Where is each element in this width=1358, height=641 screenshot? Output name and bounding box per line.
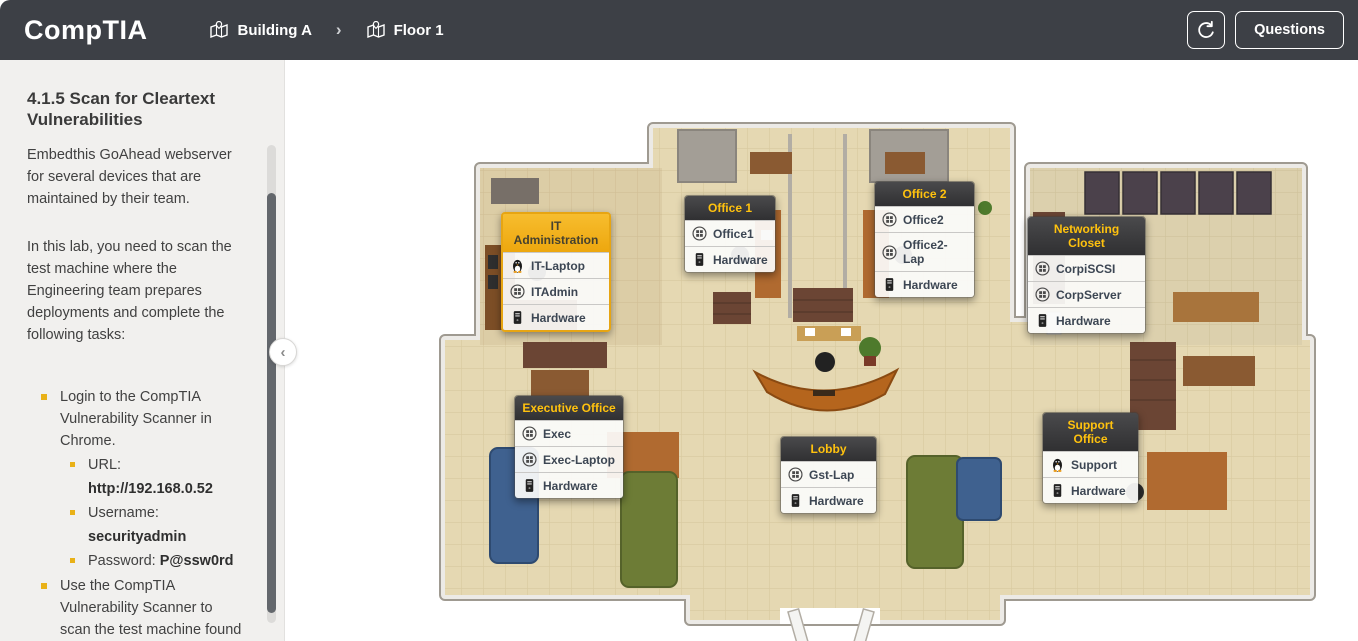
comptia-logo: CompTIA bbox=[24, 15, 147, 46]
device-label: Exec-Laptop bbox=[543, 453, 615, 467]
device-label: Hardware bbox=[1056, 314, 1111, 328]
username-label: Username: bbox=[88, 505, 159, 521]
hardware-icon bbox=[1035, 313, 1050, 328]
sidebar-scrollbar-thumb[interactable] bbox=[267, 193, 276, 613]
subtask-username: Username: securityadmin bbox=[70, 501, 244, 549]
refresh-icon bbox=[1196, 20, 1216, 40]
room-title[interactable]: Office 1 bbox=[685, 196, 775, 220]
subtask-url: URL: http://192.168.0.52 bbox=[70, 453, 244, 501]
lab-title: 4.1.5 Scan for Cleartext Vulnerabilities bbox=[27, 88, 244, 131]
task-list: Login to the CompTIA Vulnerability Scann… bbox=[41, 386, 244, 641]
password-value: P@ssw0rd bbox=[160, 553, 234, 569]
hardware-icon bbox=[522, 478, 537, 493]
room-title[interactable]: IT Administration bbox=[503, 214, 609, 252]
device-label: CorpServer bbox=[1056, 288, 1121, 302]
room-label-office-1[interactable]: Office 1 Office1 Hardware bbox=[684, 195, 776, 273]
windows-icon bbox=[882, 245, 897, 260]
floorplan-area: IT Administration IT-Laptop ITAdmin Hard… bbox=[285, 60, 1358, 641]
device-label: Hardware bbox=[543, 479, 598, 493]
linux-icon bbox=[510, 258, 525, 273]
url-label: URL: bbox=[88, 457, 121, 473]
breadcrumb-floor[interactable]: Floor 1 bbox=[366, 21, 444, 39]
room-label-it-administration[interactable]: IT Administration IT-Laptop ITAdmin Hard… bbox=[501, 212, 611, 332]
device-item-hardware[interactable]: Hardware bbox=[685, 246, 775, 272]
device-label: Office1 bbox=[713, 227, 754, 241]
device-label: Gst-Lap bbox=[809, 468, 854, 482]
room-title[interactable]: Lobby bbox=[781, 437, 876, 461]
windows-icon bbox=[1035, 261, 1050, 276]
device-item-exec[interactable]: Exec bbox=[515, 420, 623, 446]
device-label: ITAdmin bbox=[531, 285, 578, 299]
room-title[interactable]: Networking Closet bbox=[1028, 217, 1145, 255]
windows-icon bbox=[1035, 287, 1050, 302]
device-item-hardware[interactable]: Hardware bbox=[1043, 477, 1138, 503]
url-value: http://192.168.0.52 bbox=[88, 481, 213, 497]
lab-instructions: In this lab, you need to scan the test m… bbox=[27, 236, 244, 346]
device-label: Hardware bbox=[809, 494, 864, 508]
top-header-bar: CompTIA Building A › Floor 1 bbox=[0, 0, 1358, 60]
device-label: IT-Laptop bbox=[531, 259, 585, 273]
device-label: Hardware bbox=[713, 253, 768, 267]
windows-icon bbox=[522, 426, 537, 441]
task-item-scan: Use the CompTIA Vulnerability Scanner to… bbox=[41, 575, 244, 641]
task-text: Use the CompTIA Vulnerability Scanner to… bbox=[60, 578, 241, 641]
room-title[interactable]: Executive Office bbox=[515, 396, 623, 420]
device-item-hardware[interactable]: Hardware bbox=[875, 271, 974, 297]
map-pin-icon bbox=[209, 21, 229, 39]
hardware-icon bbox=[882, 277, 897, 292]
windows-icon bbox=[788, 467, 803, 482]
lab-instructions-sidebar: 4.1.5 Scan for Cleartext Vulnerabilities… bbox=[0, 60, 285, 641]
device-item-corpserver[interactable]: CorpServer bbox=[1028, 281, 1145, 307]
windows-icon bbox=[510, 284, 525, 299]
room-title[interactable]: Support Office bbox=[1043, 413, 1138, 451]
device-item-gst-lap[interactable]: Gst-Lap bbox=[781, 461, 876, 487]
device-label: Office2 bbox=[903, 213, 944, 227]
hardware-icon bbox=[1050, 483, 1065, 498]
refresh-button[interactable] bbox=[1187, 11, 1225, 49]
device-item-it-laptop[interactable]: IT-Laptop bbox=[503, 252, 609, 278]
device-label: Exec bbox=[543, 427, 571, 441]
breadcrumb-floor-label: Floor 1 bbox=[394, 22, 444, 39]
device-label: Hardware bbox=[903, 278, 958, 292]
device-item-hardware[interactable]: Hardware bbox=[1028, 307, 1145, 333]
floorplan-image bbox=[285, 60, 1358, 641]
task-item-login: Login to the CompTIA Vulnerability Scann… bbox=[41, 386, 244, 573]
device-label: CorpiSCSI bbox=[1056, 262, 1115, 276]
task-text: Login to the CompTIA Vulnerability Scann… bbox=[60, 389, 212, 449]
device-label: Hardware bbox=[531, 311, 586, 325]
device-label: Hardware bbox=[1071, 484, 1126, 498]
sidebar-collapse-button[interactable]: ‹ bbox=[269, 338, 297, 366]
device-item-office2-lap[interactable]: Office2-Lap bbox=[875, 232, 974, 271]
device-item-office1[interactable]: Office1 bbox=[685, 220, 775, 246]
device-item-hardware[interactable]: Hardware bbox=[781, 487, 876, 513]
breadcrumb-separator: › bbox=[336, 20, 342, 40]
device-item-hardware[interactable]: Hardware bbox=[503, 304, 609, 330]
device-item-support[interactable]: Support bbox=[1043, 451, 1138, 477]
room-label-lobby[interactable]: Lobby Gst-Lap Hardware bbox=[780, 436, 877, 514]
hardware-icon bbox=[788, 493, 803, 508]
room-label-support-office[interactable]: Support Office Support Hardware bbox=[1042, 412, 1139, 504]
device-item-office2[interactable]: Office2 bbox=[875, 206, 974, 232]
windows-icon bbox=[882, 212, 897, 227]
room-title[interactable]: Office 2 bbox=[875, 182, 974, 206]
breadcrumb-building-label: Building A bbox=[237, 22, 311, 39]
username-value: securityadmin bbox=[88, 529, 186, 545]
device-label: Office2-Lap bbox=[903, 238, 967, 266]
breadcrumb-building[interactable]: Building A bbox=[209, 21, 311, 39]
lab-description: Embedthis GoAhead webserver for several … bbox=[27, 144, 244, 210]
device-label: Support bbox=[1071, 458, 1117, 472]
password-label: Password: bbox=[88, 553, 160, 569]
hardware-icon bbox=[692, 252, 707, 267]
room-label-networking-closet[interactable]: Networking Closet CorpiSCSI CorpServer H… bbox=[1027, 216, 1146, 334]
device-item-itadmin[interactable]: ITAdmin bbox=[503, 278, 609, 304]
hardware-icon bbox=[510, 310, 525, 325]
map-pin-icon bbox=[366, 21, 386, 39]
device-item-corpiscsi[interactable]: CorpiSCSI bbox=[1028, 255, 1145, 281]
subtask-password: Password: P@ssw0rd bbox=[70, 549, 244, 573]
room-label-office-2[interactable]: Office 2 Office2 Office2-Lap Hardware bbox=[874, 181, 975, 298]
windows-icon bbox=[522, 452, 537, 467]
breadcrumb: Building A › Floor 1 bbox=[209, 20, 443, 40]
windows-icon bbox=[692, 226, 707, 241]
linux-icon bbox=[1050, 457, 1065, 472]
questions-button[interactable]: Questions bbox=[1235, 11, 1344, 49]
room-label-executive-office[interactable]: Executive Office Exec Exec-Laptop Hardwa… bbox=[514, 395, 624, 499]
device-item-hardware[interactable]: Hardware bbox=[515, 472, 623, 498]
device-item-exec-laptop[interactable]: Exec-Laptop bbox=[515, 446, 623, 472]
